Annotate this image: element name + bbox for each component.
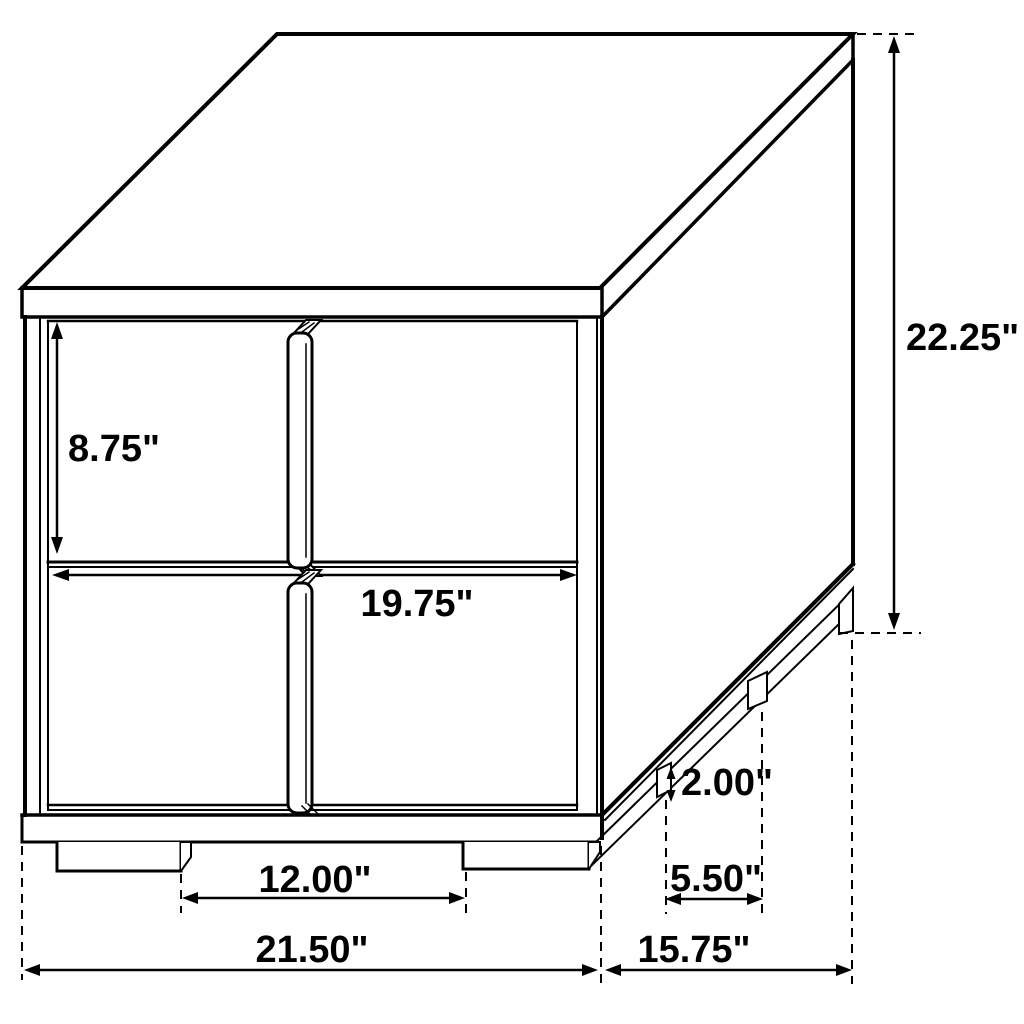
arrow-down-icon (888, 613, 900, 630)
arrow-up-icon (51, 322, 63, 339)
side-plinth-bottom (596, 591, 853, 842)
arrow-right-icon (449, 892, 465, 904)
side-runner-bottom (589, 622, 841, 868)
top-face (22, 34, 853, 288)
back-corner-leg (839, 588, 853, 634)
dim-label-foot-height: 2.00" (681, 762, 773, 804)
handle-bar (288, 583, 312, 813)
side-foot-rear (748, 672, 767, 709)
front-left-leg (57, 842, 181, 871)
lower-drawer-handle (288, 570, 321, 816)
arrow-right-icon (560, 569, 577, 581)
dim-label-front-leg-spacing: 12.00" (258, 859, 371, 901)
arrow-down-icon (667, 790, 676, 802)
arrow-left-icon (182, 892, 198, 904)
base-plinth (22, 815, 596, 842)
dim-label-side-foot-spacing: 5.50" (670, 858, 762, 900)
upper-drawer-handle (288, 320, 321, 576)
handle-bar (288, 333, 312, 568)
dim-foot-height: 2.00" (667, 762, 773, 804)
dim-overall-width: 21.50" (24, 929, 598, 976)
dimension-diagram-page: 8.75" 19.75" 22.25" 2.00" 5. (0, 0, 1024, 1024)
front-right-leg (463, 842, 589, 869)
arrow-left-icon (24, 964, 40, 976)
dim-overall-depth: 15.75" (605, 929, 852, 976)
dim-label-overall-depth: 15.75" (637, 929, 750, 971)
dim-side-foot-spacing: 5.50" (665, 858, 763, 905)
arrow-down-icon (51, 537, 63, 554)
top-front-edge (22, 288, 602, 317)
arrow-up-icon (888, 36, 900, 53)
dim-label-overall-width: 21.50" (255, 929, 368, 971)
dim-drawer-height: 8.75" (51, 322, 160, 554)
front-left-leg-side (181, 842, 191, 871)
dim-label-drawer-width: 19.75" (360, 583, 473, 625)
arrow-left-icon (605, 964, 621, 976)
dim-front-leg-spacing: 12.00" (182, 859, 465, 904)
top-panel (22, 34, 853, 317)
arrow-left-icon (52, 569, 69, 581)
dim-overall-height: 22.25" (888, 36, 1019, 630)
arrow-right-icon (836, 964, 852, 976)
nightstand-dimension-diagram: 8.75" 19.75" 22.25" 2.00" 5. (0, 0, 1024, 1024)
legs (57, 588, 853, 871)
dim-label-drawer-height: 8.75" (68, 428, 160, 470)
front-right-leg-side (589, 842, 600, 869)
dim-label-overall-height: 22.25" (906, 317, 1019, 359)
arrow-right-icon (582, 964, 598, 976)
